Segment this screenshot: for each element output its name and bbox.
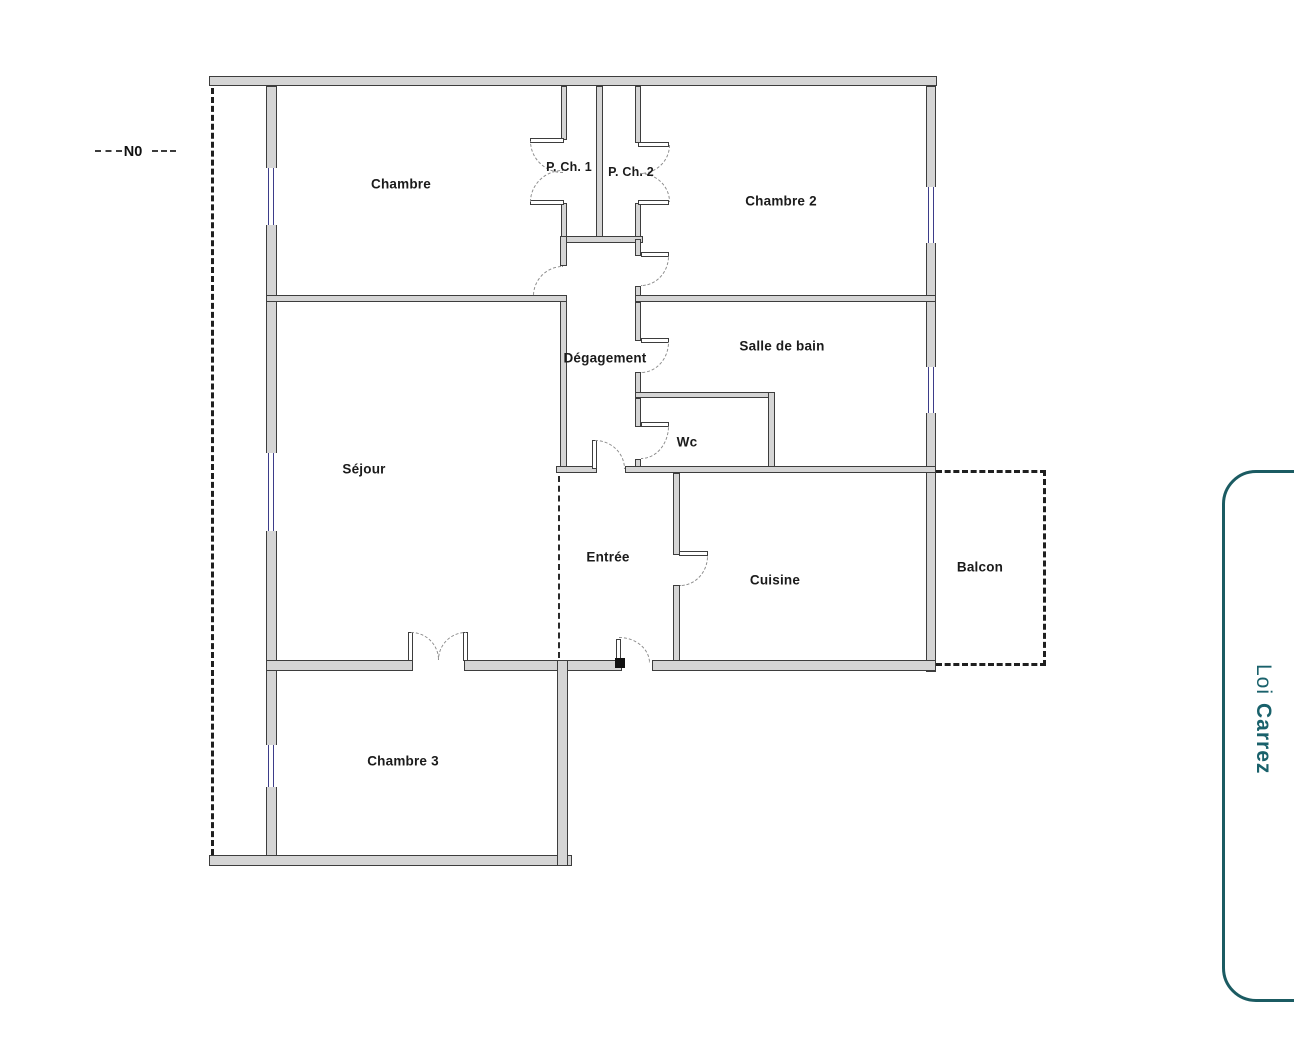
wall bbox=[556, 466, 597, 473]
room-label-chambre: Chambre bbox=[371, 177, 431, 192]
wall bbox=[625, 466, 936, 473]
wall bbox=[266, 660, 413, 671]
window-glass bbox=[268, 168, 274, 225]
loi-carrez-label: LoiCarrez bbox=[1251, 664, 1275, 774]
wall bbox=[635, 203, 641, 239]
door-swing-arc bbox=[533, 266, 563, 296]
compass-label: N0 bbox=[124, 144, 143, 160]
balcony-dashed-top bbox=[936, 470, 1046, 473]
room-label-p-ch-2: P. Ch. 2 bbox=[608, 165, 654, 179]
compass-dash-right bbox=[152, 150, 176, 152]
room-label-balcon: Balcon bbox=[957, 560, 1003, 575]
wall bbox=[635, 86, 641, 143]
room-label-chambre-2: Chambre 2 bbox=[745, 194, 817, 209]
compass-dash-left bbox=[95, 150, 122, 152]
wall bbox=[768, 392, 775, 472]
room-label-salle-de-bain: Salle de bain bbox=[739, 339, 824, 354]
loi-carrez-brand: Carrez bbox=[1252, 703, 1275, 774]
wall bbox=[596, 86, 603, 239]
wall bbox=[652, 660, 936, 671]
door-hinge bbox=[615, 658, 625, 668]
balcony-dashed-bottom bbox=[936, 663, 1046, 666]
door-swing-arc bbox=[680, 556, 708, 586]
left-boundary-dashed-line bbox=[211, 88, 214, 855]
wall bbox=[635, 302, 641, 341]
wall bbox=[266, 295, 567, 302]
wall bbox=[464, 660, 622, 671]
room-label-sejour: Séjour bbox=[342, 462, 385, 477]
wall bbox=[209, 76, 937, 86]
door-swing-arc bbox=[530, 170, 563, 202]
sejour-entree-dashed-line bbox=[558, 476, 560, 658]
window-glass bbox=[268, 745, 274, 787]
window-glass bbox=[928, 187, 934, 243]
room-label-cuisine: Cuisine bbox=[750, 573, 800, 588]
room-label-chambre-3: Chambre 3 bbox=[367, 754, 439, 769]
wall bbox=[209, 855, 572, 866]
wall bbox=[561, 86, 567, 140]
door-swing-arc bbox=[438, 632, 466, 660]
room-label-entree: Entrée bbox=[586, 550, 629, 565]
wall bbox=[557, 660, 568, 866]
door-swing-arc bbox=[595, 440, 625, 469]
room-label-degagement: Dégagement bbox=[563, 351, 646, 366]
floor-plan: N0 Chambre P. Ch. 1 P. Ch. 2 Chambre 2 S… bbox=[0, 0, 1294, 1063]
balcony-dashed-right bbox=[1043, 470, 1046, 666]
room-label-p-ch-1: P. Ch. 1 bbox=[546, 160, 592, 174]
wall bbox=[560, 295, 567, 472]
wall bbox=[560, 236, 567, 266]
wall bbox=[635, 295, 936, 302]
window-glass bbox=[268, 453, 274, 531]
loi-carrez-prefix: Loi bbox=[1252, 664, 1275, 695]
door-swing-arc bbox=[641, 256, 669, 286]
wall bbox=[561, 236, 643, 243]
door-swing-arc bbox=[411, 632, 439, 660]
wall bbox=[673, 585, 680, 661]
door-swing-arc bbox=[641, 426, 669, 459]
wall bbox=[561, 203, 567, 239]
window-glass bbox=[928, 367, 934, 413]
wall bbox=[635, 392, 775, 398]
room-label-wc: Wc bbox=[677, 435, 698, 450]
wall bbox=[673, 473, 680, 555]
